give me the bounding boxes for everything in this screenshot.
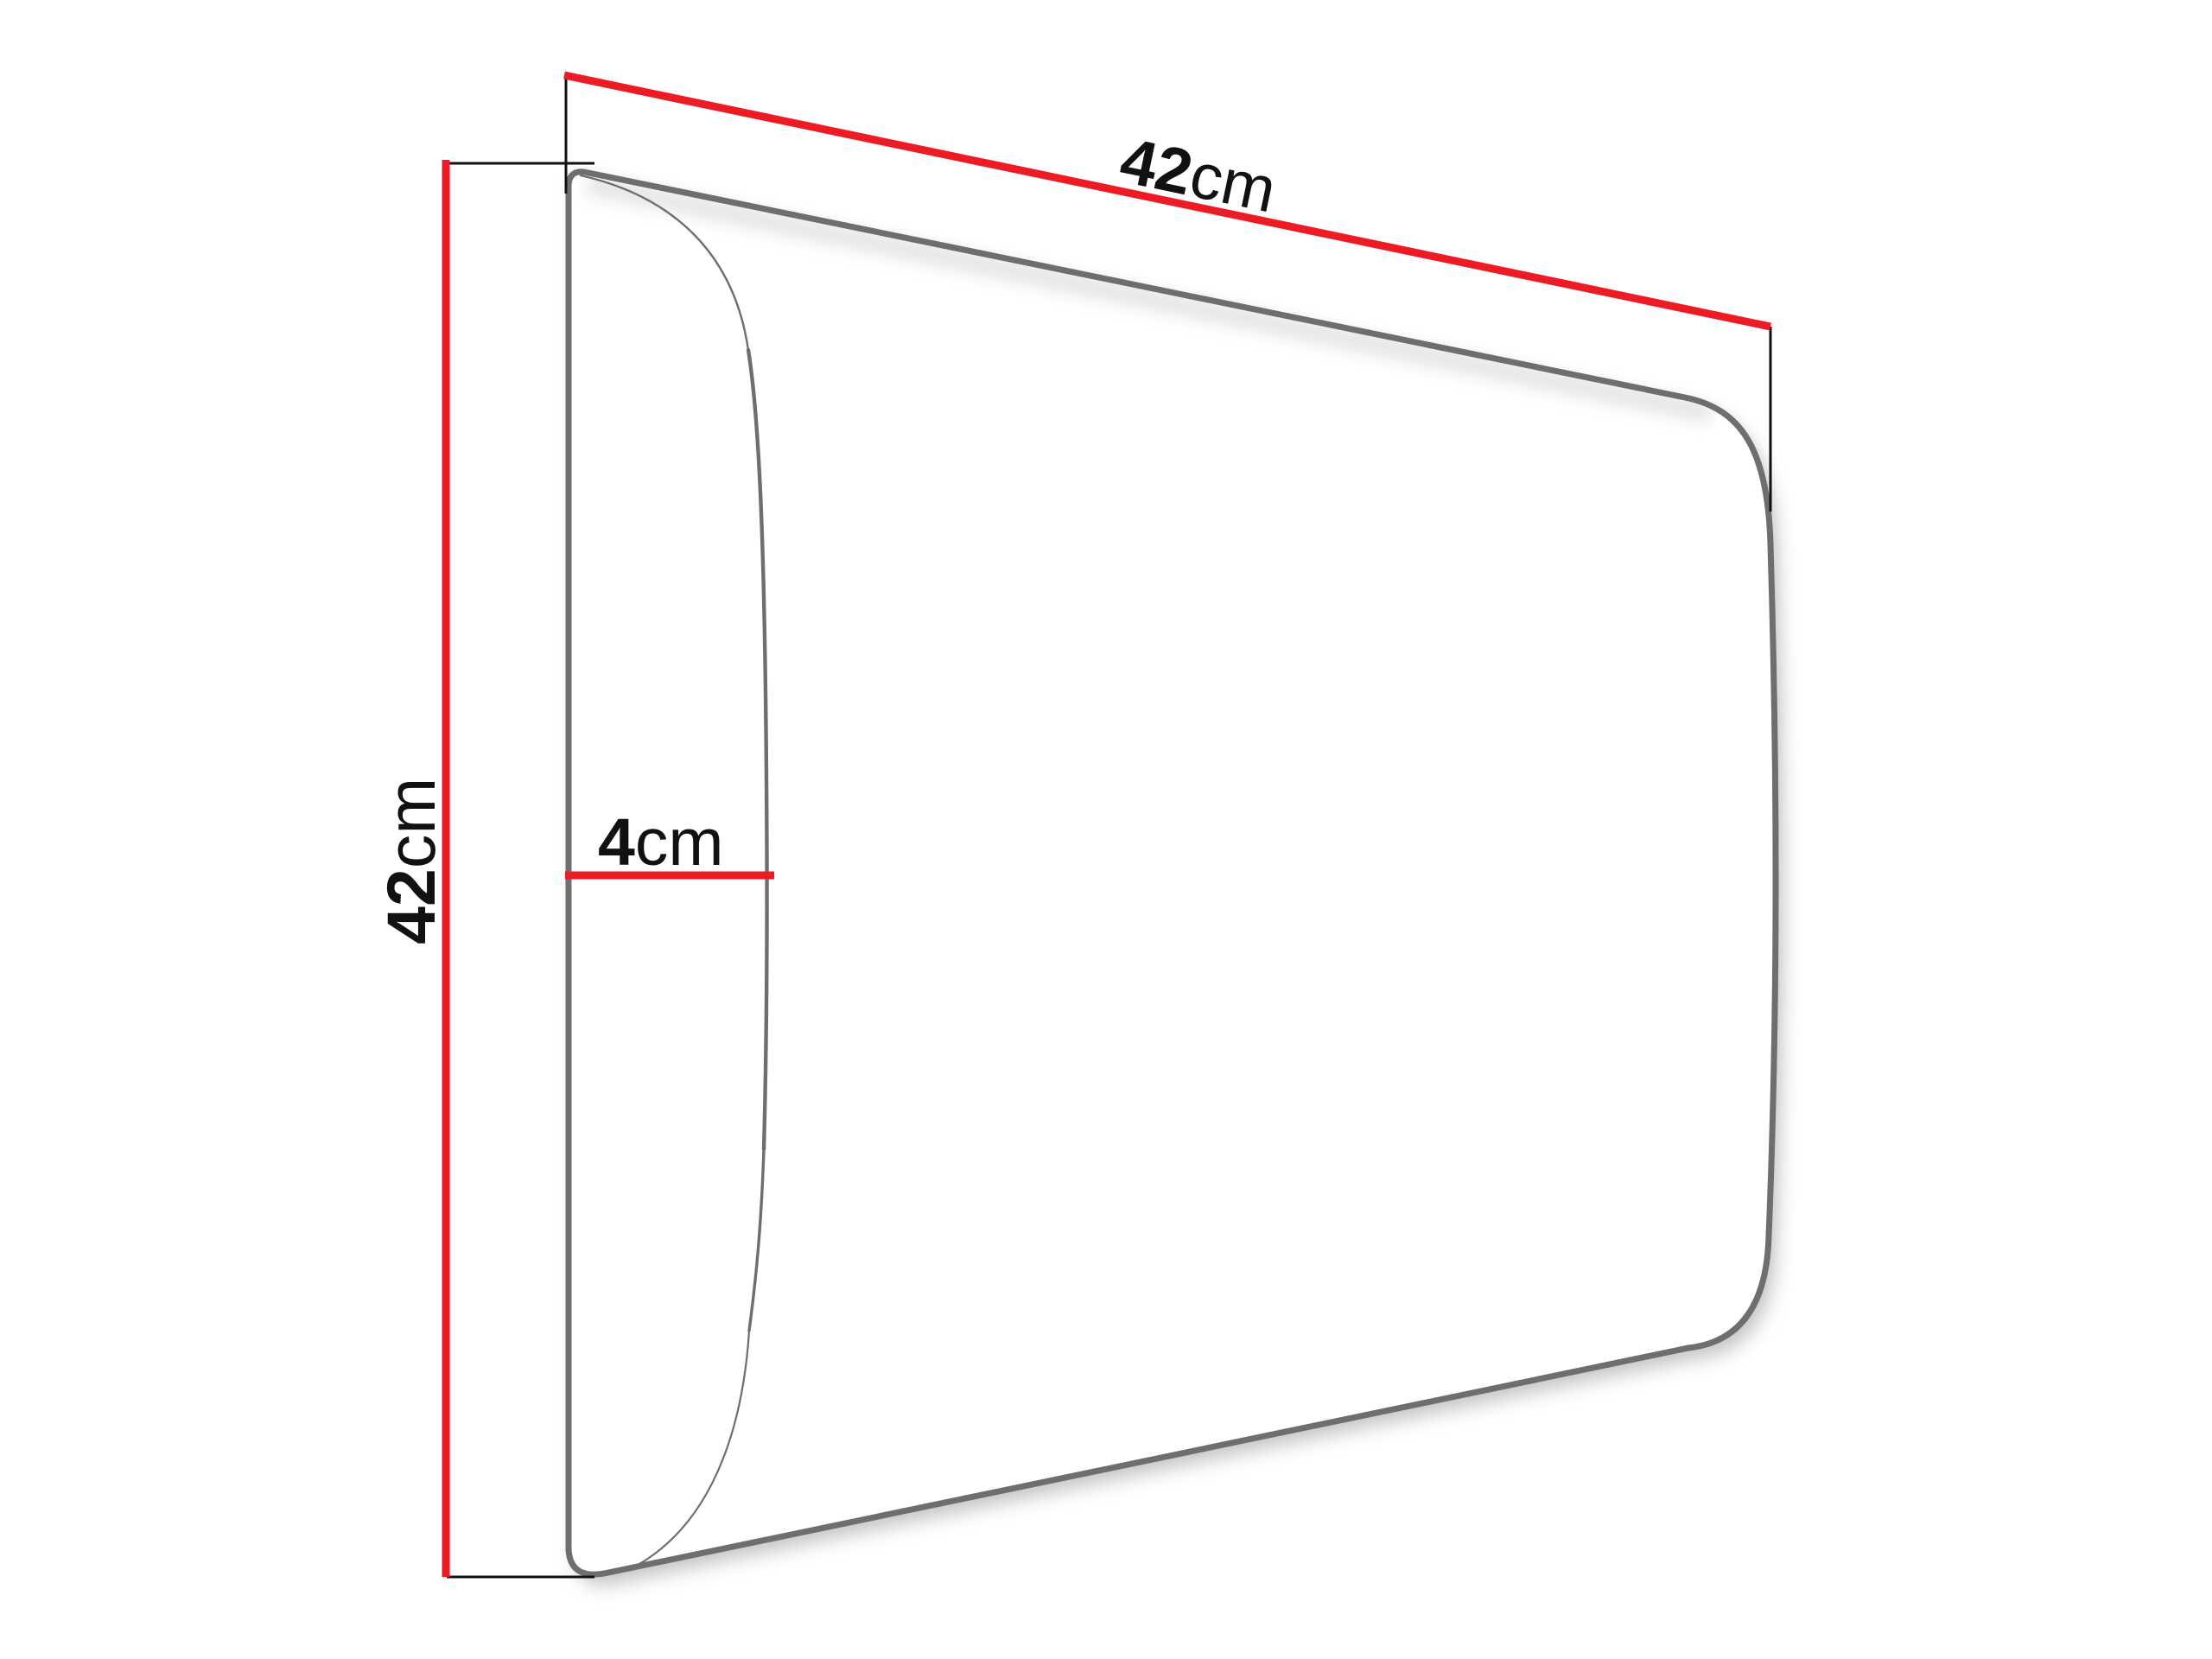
- svg-text:42cm: 42cm: [372, 778, 449, 944]
- svg-text:4cm: 4cm: [598, 805, 723, 880]
